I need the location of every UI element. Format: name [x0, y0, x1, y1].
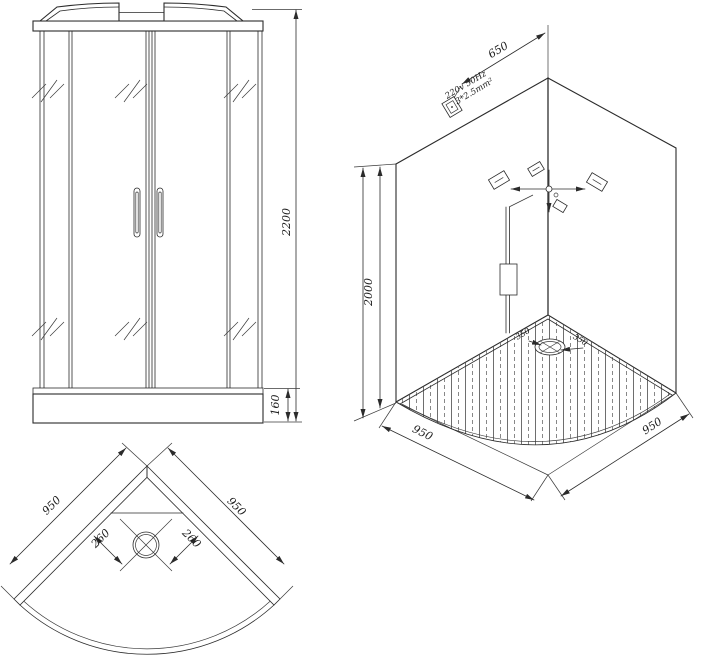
dim-plan-drain-right: 260	[170, 526, 203, 564]
dim-plan-side-right: 950	[147, 443, 293, 599]
plan-left-wall	[14, 466, 147, 605]
roof-right-wing	[164, 3, 243, 21]
plan-view: 260 260 950 950	[1, 443, 293, 654]
iso-drain	[535, 339, 565, 355]
front-tray-label: 160	[269, 395, 282, 416]
right-door-handle	[157, 188, 163, 237]
dim-iso-wall-height: 2000	[354, 164, 396, 421]
technical-drawing-sheet: 2200 160 350	[0, 0, 710, 662]
door-handles	[134, 188, 163, 237]
dim-front-tray-height: 160	[264, 389, 300, 422]
iso-view: 350 350 220v 50Hz	[354, 25, 693, 501]
left-door-handle	[134, 188, 140, 237]
plan-drain-left-label: 260	[88, 527, 113, 552]
front-height-label: 2200	[280, 208, 293, 237]
plan-drain	[120, 519, 172, 571]
dim-front-overall-height: 2200	[252, 10, 302, 423]
top-frame-band	[33, 21, 263, 31]
roof-left-wing	[40, 3, 119, 21]
plan-drain-right-label: 260	[179, 526, 204, 551]
iso-base-right-label: 950	[640, 415, 665, 437]
base-track	[33, 388, 263, 394]
plan-tray-rim	[20, 601, 274, 654]
base-panel	[33, 394, 263, 423]
roof	[33, 3, 263, 31]
plan-side-right-label: 950	[224, 495, 248, 519]
water-inlet-point	[546, 186, 552, 192]
iso-base-left-label: 950	[410, 422, 435, 443]
shower-column	[500, 195, 533, 333]
dim-plan-side-left: 950	[1, 443, 147, 599]
glass-reflection-marks	[32, 80, 256, 340]
iso-floor-tray	[396, 315, 676, 475]
iso-wall-height-label: 2000	[362, 278, 375, 307]
plan-right-wall	[147, 466, 280, 605]
shower-cabin-drawing: 2200 160 350	[0, 0, 710, 662]
iso-socket-distance-label: 650	[486, 39, 511, 61]
front-view: 2200 160	[32, 3, 302, 423]
shower-base	[33, 388, 263, 423]
frame-mullions	[40, 31, 262, 388]
